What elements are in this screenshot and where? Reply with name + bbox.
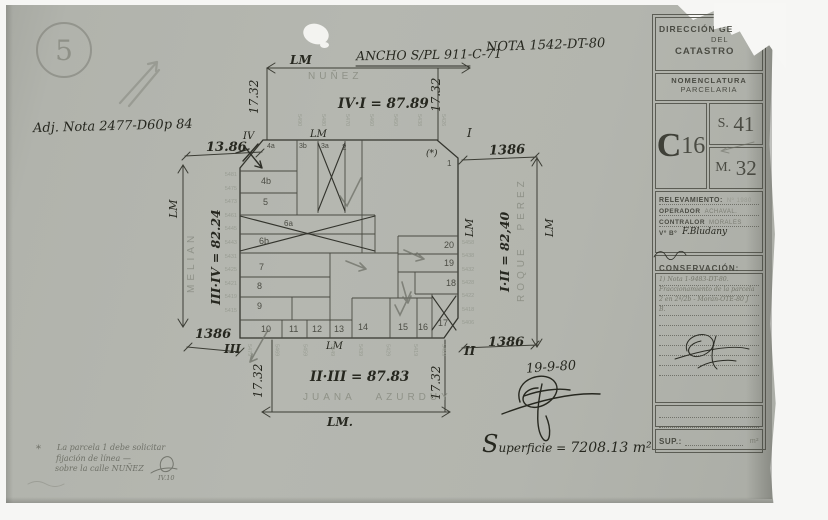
relevamiento-entry: Nº 1980 xyxy=(727,198,752,204)
conservacion-note-1: 1) Nota 1-9483-DT-80. xyxy=(659,276,759,286)
circunscripcion-number: 16 xyxy=(681,134,705,158)
lm-label-top: LM xyxy=(290,53,312,67)
lot-number: 5461 xyxy=(225,213,237,219)
nomenclatura-box: NOMENCLATURA PARCELARIA xyxy=(655,73,763,101)
conservacion-note-4: B. xyxy=(659,306,759,316)
sup-unit: m² xyxy=(750,438,759,445)
street-name-melian: MELIAN xyxy=(186,232,197,293)
lot-number: 5415 xyxy=(225,308,237,314)
sup-label: SUP.: xyxy=(659,437,682,446)
operador-label: OPERADOR xyxy=(659,208,701,215)
lot-number: 5438 xyxy=(416,114,422,126)
superficie-annotation: Superficie = 7208.13 m² xyxy=(482,430,652,458)
conservacion-label: CONSERVACIÓN: xyxy=(659,264,739,273)
lot-number: 5479 xyxy=(246,344,252,356)
scanned-cadastral-sheet: { "sheet": {"number": "5"}, "annotations… xyxy=(0,0,828,520)
lm-label-inner-top: LM xyxy=(310,129,327,140)
parcel-9: 9 xyxy=(257,301,262,311)
lot-number: 5409 xyxy=(440,344,446,356)
seccion-letter: S. xyxy=(718,116,729,132)
lm-label-right-outer: LM xyxy=(543,218,556,237)
sheet-number-stamp: 5 xyxy=(36,22,92,78)
sheet-number: 5 xyxy=(55,34,73,67)
vobo-signature-text: F.Bludany xyxy=(682,227,727,237)
conservacion-header: CONSERVACIÓN: xyxy=(655,255,763,271)
lm-label-left: LM xyxy=(167,199,180,218)
dim-1386-top-left: 13.86 xyxy=(206,140,247,155)
circunscripcion-letter: C xyxy=(657,129,682,163)
dotted-line xyxy=(659,316,759,326)
parcel-16: 16 xyxy=(418,322,428,332)
dim-1386-bottom-left: 1386 xyxy=(195,327,231,342)
lot-number: 5449 xyxy=(329,344,335,356)
seccion-number: 41 xyxy=(733,112,754,137)
dim-bottom-side: II·III = 87.83 xyxy=(310,369,409,385)
lot-number: 5439 xyxy=(357,344,363,356)
catastro-line: CATASTRO xyxy=(675,46,759,57)
parcel-3b: 3b xyxy=(299,143,307,150)
lot-number: 5458 xyxy=(462,240,474,246)
parcel-1: 1 xyxy=(447,159,451,168)
dim-1386-top-right: 1386 xyxy=(489,142,526,158)
parcel-4a: 4a xyxy=(267,143,275,150)
footnote-star: * xyxy=(36,444,41,455)
lot-number: 5475 xyxy=(225,186,237,192)
vertex-iii: III xyxy=(224,342,241,356)
nomenclatura-label: NOMENCLATURA xyxy=(659,76,759,85)
relevamiento-box: RELEVAMIENTO:Nº 1980 OPERADORACHAVAL. CO… xyxy=(655,191,763,253)
dotted-line xyxy=(659,418,759,428)
contralor-label: CONTRALOR xyxy=(659,219,705,226)
dotted-line xyxy=(659,366,759,376)
contralor-entry: MORALES xyxy=(709,220,742,226)
asterisk-mark: (*) xyxy=(426,149,438,159)
parcel-5: 5 xyxy=(263,197,268,207)
lot-number: 5422 xyxy=(462,293,474,299)
lot-number: 5406 xyxy=(462,320,474,326)
parcel-20: 20 xyxy=(444,240,454,250)
parcelaria-label: PARCELARIA xyxy=(659,85,759,94)
dim-1732-bottom-left: 17.32 xyxy=(251,364,265,398)
lot-number: 5480 xyxy=(320,114,326,126)
dim-1386-bottom-right: 1386 xyxy=(488,335,524,350)
lot-number: 5438 xyxy=(462,253,474,259)
vertex-iv: IV xyxy=(243,131,254,142)
conservacion-note-3: 2 en 2ª/2b - Morán-OTE-80 J xyxy=(659,296,759,306)
superficie-initial: S xyxy=(482,430,498,458)
parcel-18: 18 xyxy=(446,278,456,288)
parcel-10: 10 xyxy=(261,324,271,334)
parcel-8: 8 xyxy=(257,281,262,291)
paper-defect-spot-small xyxy=(320,42,329,48)
dim-1732-bottom-right: 17.32 xyxy=(429,366,443,400)
dotted-line xyxy=(659,326,759,336)
street-name-roque-perez: ROQUE PEREZ xyxy=(516,177,527,302)
lot-numbers-bottom: 5479 5469 5459 5449 5439 5429 5419 5409 xyxy=(246,344,446,356)
lm-label-bottom: LM. xyxy=(327,415,353,429)
parcel-4b: 4b xyxy=(261,176,271,186)
title-block: DIRECCIÓN GE DEL CATASTRO NOMENCLATURA P… xyxy=(652,14,766,450)
lm-label-right-inner: LM xyxy=(463,218,476,237)
lot-number: 5429 xyxy=(385,344,391,356)
lot-number: 5425 xyxy=(225,267,237,273)
lot-number: 5428 xyxy=(462,280,474,286)
footnote-ref: IV.10 xyxy=(158,474,174,482)
manzana-cell: M. 32 xyxy=(709,147,763,189)
seccion-manzana-cells: S. 41 M. 32 xyxy=(709,103,763,189)
lot-numbers-top: 5490 5480 5470 5460 5450 5438 5426 xyxy=(296,114,446,126)
extra-ruled-box xyxy=(655,405,763,427)
manzana-number: 32 xyxy=(736,156,757,181)
manzana-letter: M. xyxy=(715,160,731,176)
superficie-word: uperficie = xyxy=(498,441,566,455)
lot-number: 5490 xyxy=(296,114,302,126)
lot-number: 5431 xyxy=(225,254,237,260)
parcel-13: 13 xyxy=(334,324,344,334)
dotted-line xyxy=(659,408,759,418)
lot-number: 5419 xyxy=(225,294,237,300)
lot-number: 5481 xyxy=(225,172,237,178)
lot-number: 5469 xyxy=(274,344,280,356)
conservacion-notes: 1) Nota 1-9483-DT-80. Fraccionamiento de… xyxy=(655,273,763,403)
sup-box: SUP.: m² xyxy=(655,429,763,453)
lot-numbers-left: 5481 5475 5473 5461 5445 5443 5431 5425 … xyxy=(219,172,237,314)
footnote-line-1: La parcela 1 debe solicitar xyxy=(57,443,165,452)
lot-number: 5426 xyxy=(440,114,446,126)
parcel-2: 2 xyxy=(342,143,346,152)
parcel-19: 19 xyxy=(444,258,454,268)
parcel-15: 15 xyxy=(398,322,408,332)
lot-number: 5473 xyxy=(225,199,237,205)
lot-number: 5460 xyxy=(368,114,374,126)
relevamiento-label: RELEVAMIENTO: xyxy=(659,197,723,204)
operador-entry: ACHAVAL. xyxy=(705,209,738,215)
parcel-11: 11 xyxy=(289,324,298,334)
parcel-12: 12 xyxy=(312,324,322,334)
lot-number: 5445 xyxy=(225,226,237,232)
street-name-nunez: NUÑEZ xyxy=(308,71,362,82)
lot-number: 5418 xyxy=(462,307,474,313)
vertex-i: I xyxy=(467,126,472,140)
parcel-17: 17 xyxy=(438,318,448,328)
lot-numbers-right: 5458 5438 5432 5428 5422 5418 5406 xyxy=(462,240,474,326)
parcel-6a: 6a xyxy=(284,219,293,228)
dim-right-side: I·II = 82,40 xyxy=(497,212,512,292)
dotted-line xyxy=(659,346,759,356)
seccion-cell: S. 41 xyxy=(709,103,763,145)
lot-number: 5470 xyxy=(344,114,350,126)
footnote-line-2: fijación de línea — xyxy=(56,454,131,463)
lot-number: 5432 xyxy=(462,267,474,273)
dim-1732-top-right: 17.32 xyxy=(429,78,443,112)
dim-top-side: IV·I = 87.89 xyxy=(338,96,429,112)
lot-number: 5443 xyxy=(225,240,237,246)
lot-number: 5419 xyxy=(412,344,418,356)
conservacion-note-2: Fraccionamiento de la parcela xyxy=(659,286,759,296)
dotted-line xyxy=(659,356,759,366)
dim-1732-top-left: 17.32 xyxy=(247,80,261,114)
parcel-7: 7 xyxy=(259,262,264,272)
footnote-line-3: sobre la calle NUÑEZ xyxy=(55,464,144,473)
vobo-label: Vº Bº xyxy=(659,230,677,237)
circunscripcion-cell: C16 xyxy=(655,103,707,189)
ancho-annotation: ANCHO S/PL 911-C-71 xyxy=(356,46,502,64)
superficie-value: 7208.13 m² xyxy=(570,440,651,456)
parcel-3a: 3a xyxy=(321,143,329,150)
lot-number: 5459 xyxy=(301,344,307,356)
dotted-line xyxy=(659,336,759,346)
parcel-14: 14 xyxy=(358,322,368,332)
lot-number: 5450 xyxy=(392,114,398,126)
lot-number: 5421 xyxy=(225,281,237,287)
vertex-ii: II xyxy=(464,344,475,358)
dotted-line xyxy=(685,436,743,446)
parcel-6b: 6b xyxy=(259,236,269,246)
nomenclature-cells: C16 S. 41 M. 32 xyxy=(655,103,763,189)
